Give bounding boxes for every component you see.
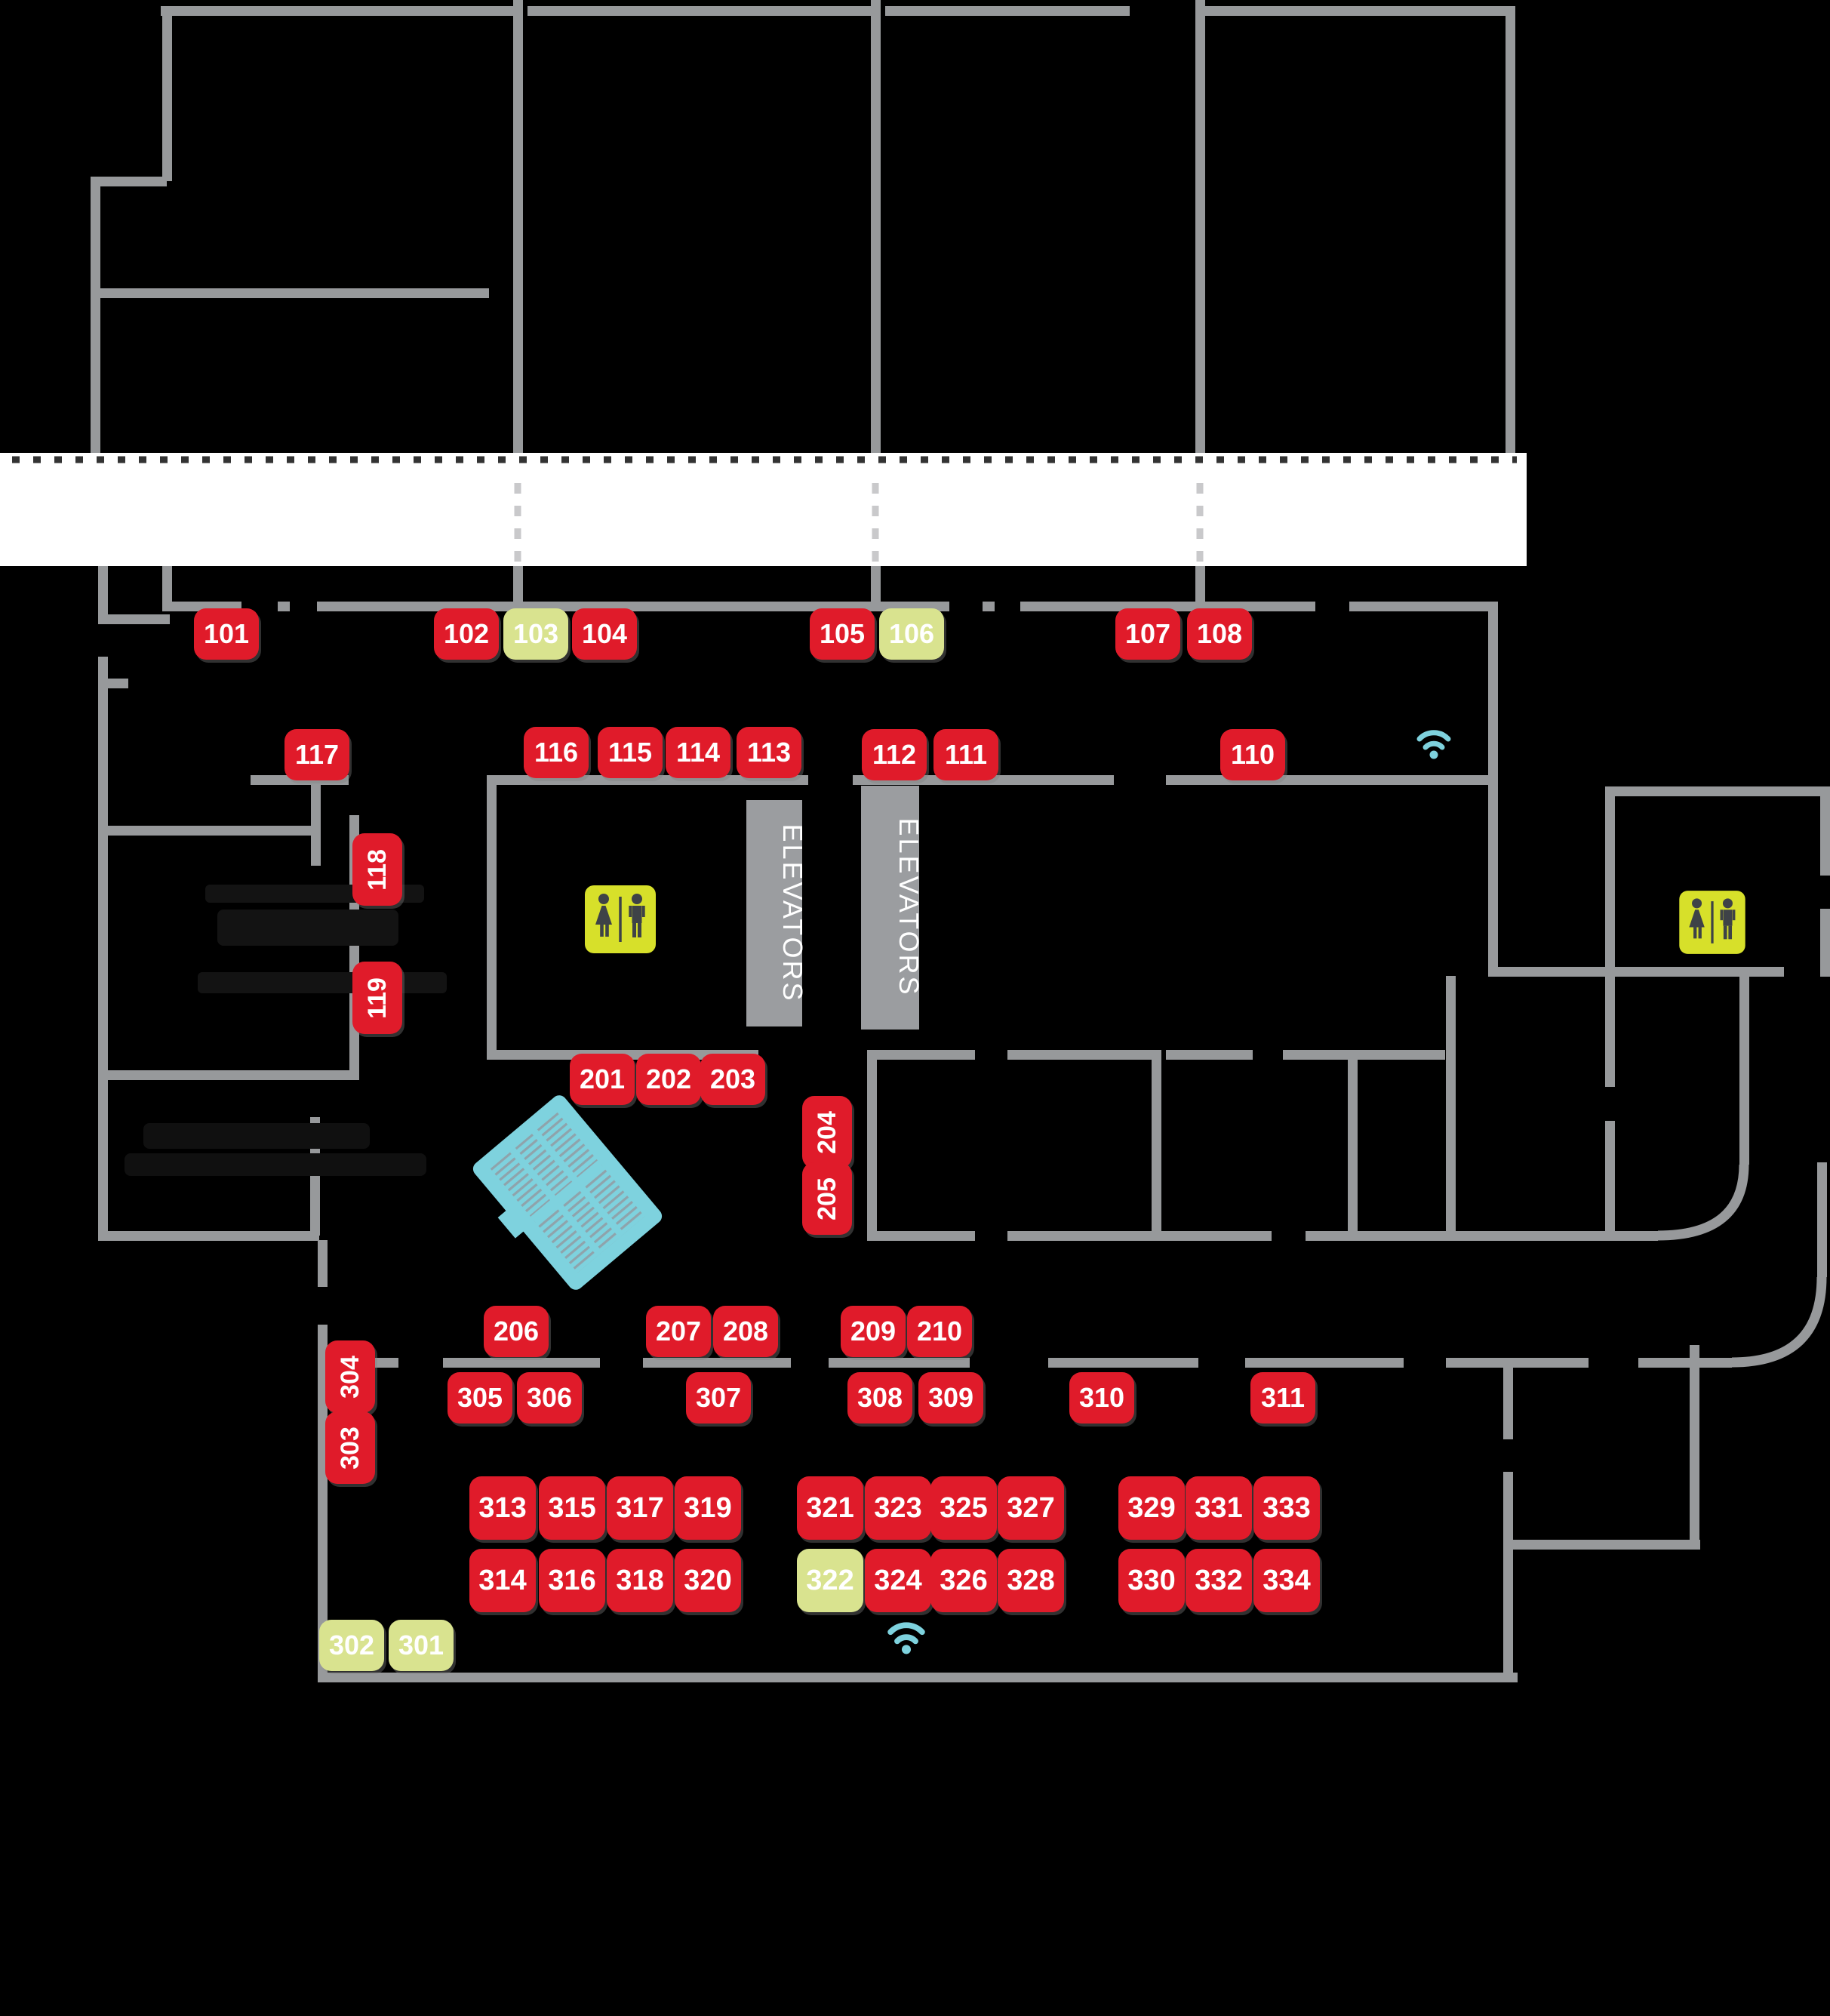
- booth-label: 322: [806, 1565, 853, 1597]
- booth-315[interactable]: 315: [539, 1476, 605, 1540]
- booth-label: 325: [940, 1492, 987, 1525]
- booth-332[interactable]: 332: [1186, 1549, 1252, 1612]
- booth-320[interactable]: 320: [675, 1549, 741, 1612]
- booth-label: 328: [1007, 1565, 1054, 1597]
- booth-108[interactable]: 108: [1187, 608, 1252, 660]
- booth-label: 116: [534, 737, 578, 768]
- booth-label: 106: [889, 618, 934, 650]
- booth-326[interactable]: 326: [930, 1549, 997, 1612]
- booth-label: 105: [820, 618, 865, 650]
- booth-label: 304: [335, 1356, 364, 1399]
- booth-label: 202: [646, 1063, 691, 1095]
- booth-label: 201: [580, 1063, 625, 1095]
- booth-113[interactable]: 113: [737, 727, 801, 778]
- booth-label: 101: [204, 618, 249, 650]
- booth-label: 104: [582, 618, 627, 650]
- wifi-icon: [890, 1625, 922, 1654]
- booth-label: 333: [1263, 1492, 1310, 1525]
- booth-110[interactable]: 110: [1220, 729, 1285, 780]
- booth-102[interactable]: 102: [434, 608, 499, 660]
- booth-115[interactable]: 115: [598, 727, 663, 778]
- booth-label: 305: [457, 1382, 503, 1414]
- booth-label: 317: [616, 1492, 663, 1525]
- booth-305[interactable]: 305: [448, 1372, 512, 1424]
- booth-label: 326: [940, 1565, 987, 1597]
- restroom-icon: [1679, 891, 1745, 954]
- booth-325[interactable]: 325: [930, 1476, 997, 1540]
- elevator-label: ELEVATORS: [893, 817, 924, 996]
- booth-label: 111: [945, 739, 987, 771]
- wifi-icon: [1419, 733, 1448, 759]
- elevator-label: ELEVATORS: [777, 823, 808, 1002]
- booth-311[interactable]: 311: [1250, 1372, 1315, 1424]
- booth-319[interactable]: 319: [675, 1476, 741, 1540]
- booth-324[interactable]: 324: [865, 1549, 931, 1612]
- booth-label: 327: [1007, 1492, 1054, 1525]
- booth-205[interactable]: 205: [802, 1162, 852, 1235]
- booth-310[interactable]: 310: [1069, 1372, 1134, 1424]
- booth-label: 119: [362, 977, 392, 1019]
- booth-label: 108: [1197, 618, 1242, 650]
- booth-314[interactable]: 314: [469, 1549, 536, 1612]
- elevator-bar: ELEVATORS: [861, 786, 924, 1030]
- booth-318[interactable]: 318: [607, 1549, 673, 1612]
- booth-303[interactable]: 303: [325, 1411, 375, 1484]
- booth-label: 114: [676, 737, 720, 768]
- booth-309[interactable]: 309: [918, 1372, 983, 1424]
- booth-label: 208: [723, 1316, 768, 1347]
- booth-101[interactable]: 101: [194, 608, 259, 660]
- booth-label: 206: [494, 1316, 539, 1347]
- floor-plan: ELEVATORS ELEVATORS: [0, 0, 1830, 2016]
- booth-label: 330: [1127, 1565, 1175, 1597]
- white-corridor-band: [0, 453, 1527, 566]
- stage-seating-block: [462, 1092, 665, 1300]
- booth-label: 320: [684, 1565, 731, 1597]
- booth-label: 319: [684, 1492, 731, 1525]
- booth-119[interactable]: 119: [352, 962, 402, 1034]
- booth-label: 306: [527, 1382, 572, 1414]
- booth-label: 323: [874, 1492, 921, 1525]
- booth-306[interactable]: 306: [517, 1372, 582, 1424]
- booth-204[interactable]: 204: [802, 1096, 852, 1168]
- booth-206[interactable]: 206: [484, 1306, 549, 1357]
- booth-317[interactable]: 317: [607, 1476, 673, 1540]
- booth-label: 205: [812, 1177, 841, 1220]
- booth-label: 329: [1127, 1492, 1175, 1525]
- booth-107[interactable]: 107: [1115, 608, 1180, 660]
- booth-label: 102: [444, 618, 489, 650]
- booth-327[interactable]: 327: [998, 1476, 1064, 1540]
- booth-label: 314: [478, 1565, 526, 1597]
- floor-plan-svg: ELEVATORS ELEVATORS: [0, 0, 1830, 2016]
- illegible-text-block: [125, 1123, 426, 1176]
- booth-label: 311: [1261, 1382, 1305, 1414]
- booth-117[interactable]: 117: [284, 729, 349, 780]
- booth-106[interactable]: 106: [879, 608, 944, 660]
- booth-label: 103: [513, 618, 558, 650]
- booth-323[interactable]: 323: [865, 1476, 931, 1540]
- booth-label: 207: [656, 1316, 701, 1347]
- restroom-icon: [585, 885, 656, 953]
- booth-label: 117: [295, 739, 339, 771]
- booth-308[interactable]: 308: [847, 1372, 912, 1424]
- booth-label: 332: [1195, 1565, 1242, 1597]
- booth-label: 309: [928, 1382, 973, 1414]
- booth-label: 318: [616, 1565, 663, 1597]
- elevator-bar: ELEVATORS: [746, 800, 808, 1026]
- booth-label: 112: [872, 739, 916, 771]
- curved-corner-walls: [1658, 1165, 1822, 1362]
- booth-label: 316: [548, 1565, 595, 1597]
- booth-104[interactable]: 104: [572, 608, 637, 660]
- booth-label: 308: [857, 1382, 903, 1414]
- booth-210[interactable]: 210: [907, 1306, 972, 1357]
- booth-202[interactable]: 202: [636, 1054, 701, 1105]
- booth-201[interactable]: 201: [570, 1054, 635, 1105]
- booth-label: 115: [608, 737, 652, 768]
- booth-307[interactable]: 307: [686, 1372, 751, 1424]
- booth-label: 118: [362, 849, 392, 891]
- booth-label: 204: [812, 1111, 841, 1154]
- booth-114[interactable]: 114: [666, 727, 730, 778]
- booth-208[interactable]: 208: [713, 1306, 778, 1357]
- booth-label: 321: [806, 1492, 853, 1525]
- booth-331[interactable]: 331: [1186, 1476, 1252, 1540]
- booth-321[interactable]: 321: [797, 1476, 863, 1540]
- booth-label: 107: [1125, 618, 1170, 650]
- booth-label: 301: [398, 1630, 444, 1661]
- booth-111[interactable]: 111: [933, 729, 998, 780]
- booth-label: 303: [335, 1427, 364, 1470]
- booth-label: 334: [1263, 1565, 1310, 1597]
- booth-322[interactable]: 322: [797, 1549, 863, 1612]
- booth-301[interactable]: 301: [389, 1620, 454, 1671]
- booth-209[interactable]: 209: [841, 1306, 906, 1357]
- booth-304[interactable]: 304: [325, 1340, 375, 1413]
- booth-105[interactable]: 105: [810, 608, 875, 660]
- booth-label: 307: [696, 1382, 741, 1414]
- booth-label: 331: [1195, 1492, 1242, 1525]
- booth-label: 315: [548, 1492, 595, 1525]
- booth-330[interactable]: 330: [1118, 1549, 1185, 1612]
- booth-label: 302: [329, 1630, 374, 1661]
- booth-label: 210: [917, 1316, 962, 1347]
- booth-313[interactable]: 313: [469, 1476, 536, 1540]
- booth-118[interactable]: 118: [352, 833, 402, 906]
- booth-label: 209: [850, 1316, 896, 1347]
- booth-316[interactable]: 316: [539, 1549, 605, 1612]
- booth-label: 313: [478, 1492, 526, 1525]
- booth-334[interactable]: 334: [1253, 1549, 1320, 1612]
- booth-116[interactable]: 116: [524, 727, 589, 778]
- illegible-text-block: [198, 885, 447, 993]
- booth-302[interactable]: 302: [319, 1620, 384, 1671]
- booth-label: 203: [710, 1063, 755, 1095]
- booth-label: 110: [1231, 739, 1275, 771]
- booth-label: 324: [874, 1565, 921, 1597]
- booth-329[interactable]: 329: [1118, 1476, 1185, 1540]
- booth-333[interactable]: 333: [1253, 1476, 1320, 1540]
- booth-203[interactable]: 203: [700, 1054, 765, 1105]
- booth-label: 113: [747, 737, 791, 768]
- booth-328[interactable]: 328: [998, 1549, 1064, 1612]
- booth-112[interactable]: 112: [862, 729, 927, 780]
- booth-207[interactable]: 207: [646, 1306, 711, 1357]
- booth-103[interactable]: 103: [503, 608, 568, 660]
- booth-label: 310: [1079, 1382, 1124, 1414]
